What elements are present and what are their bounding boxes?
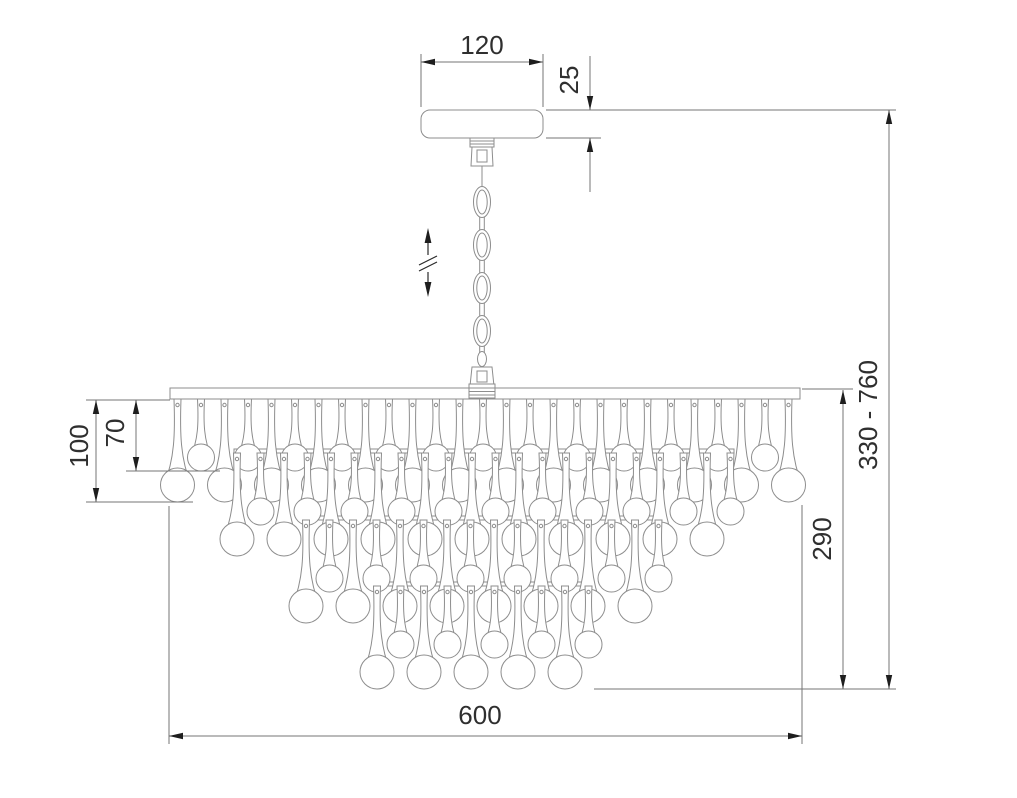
drop-ball xyxy=(387,631,414,658)
drop-ball xyxy=(220,522,254,556)
drop-hook xyxy=(458,403,461,406)
drop-hook xyxy=(610,524,613,527)
drop-hook xyxy=(481,403,484,406)
dim-label-long-drop: 100 xyxy=(64,424,94,467)
drop-hook xyxy=(658,457,661,460)
drop-ball xyxy=(690,522,724,556)
dim-label-canopy-width: 120 xyxy=(460,30,503,60)
chain-link xyxy=(474,230,491,261)
drop-hook xyxy=(740,403,743,406)
drop-hook xyxy=(528,403,531,406)
drop-hook xyxy=(317,403,320,406)
drop-hook xyxy=(563,524,566,527)
drop-hook xyxy=(447,457,450,460)
drop-hook xyxy=(787,403,790,406)
drop-ball xyxy=(360,655,394,689)
drop-ball xyxy=(289,589,323,623)
drop-hook xyxy=(705,457,708,460)
drop-hook xyxy=(353,457,356,460)
drop-ball xyxy=(267,522,301,556)
drop-hook xyxy=(293,403,296,406)
drop-ball xyxy=(316,565,343,592)
drop-hook xyxy=(588,457,591,460)
drop-ball xyxy=(454,655,488,689)
drop-ball xyxy=(501,655,535,689)
drop-hook xyxy=(306,457,309,460)
chain-link xyxy=(474,273,491,304)
drop-hook xyxy=(328,524,331,527)
drop-hook xyxy=(340,403,343,406)
drop-hook xyxy=(445,524,448,527)
drop-ball xyxy=(247,498,274,525)
dim-label-canopy-height: 25 xyxy=(554,66,584,95)
drop-hook xyxy=(586,524,589,527)
drop-hook xyxy=(351,524,354,527)
drop-hook xyxy=(540,590,543,593)
drop-hook xyxy=(682,457,685,460)
drop-hook xyxy=(270,403,273,406)
drop-hook xyxy=(492,524,495,527)
drop-ball xyxy=(188,444,215,471)
drop-hook xyxy=(199,403,202,406)
drop-hook xyxy=(376,457,379,460)
drop-ball xyxy=(752,444,779,471)
drop-ball xyxy=(670,498,697,525)
drop-hook xyxy=(729,457,732,460)
drop-hook xyxy=(398,524,401,527)
drop-hook xyxy=(517,457,520,460)
bottom-cup xyxy=(470,367,494,386)
drop-hook xyxy=(539,524,542,527)
dim-label-short-drop: 70 xyxy=(100,419,130,448)
drop-hook xyxy=(516,590,519,593)
drop-ball xyxy=(575,631,602,658)
drop-ball xyxy=(548,655,582,689)
chain-link xyxy=(474,187,491,218)
drop-hook xyxy=(400,457,403,460)
drop-hook xyxy=(516,524,519,527)
drop-hook xyxy=(552,403,555,406)
drop-hook xyxy=(411,403,414,406)
drop-hook xyxy=(587,590,590,593)
drop-hook xyxy=(646,403,649,406)
drop-hook xyxy=(375,524,378,527)
drop-ball xyxy=(645,565,672,592)
dim-label-body-height: 290 xyxy=(807,517,837,560)
drop-hook xyxy=(423,457,426,460)
drop-hook xyxy=(563,590,566,593)
drop-hook xyxy=(575,403,578,406)
chain-link xyxy=(474,316,491,347)
drop-ball xyxy=(528,631,555,658)
bar-hub xyxy=(469,384,495,398)
drop-hook xyxy=(564,457,567,460)
dim-label-body-width: 600 xyxy=(458,700,501,730)
drop-hook xyxy=(470,457,473,460)
drop-ball xyxy=(407,655,441,689)
drop-ball xyxy=(161,468,195,502)
connector-ribs xyxy=(470,138,494,147)
end-link xyxy=(478,352,487,367)
drop-hook xyxy=(494,457,497,460)
drop-hook xyxy=(669,403,672,406)
drop-hook xyxy=(763,403,766,406)
drop-hook xyxy=(329,457,332,460)
drop-hook xyxy=(422,590,425,593)
drop-hook xyxy=(611,457,614,460)
drop-ball xyxy=(481,631,508,658)
drop-hook xyxy=(235,457,238,460)
drop-hook xyxy=(693,403,696,406)
drop-hook xyxy=(422,524,425,527)
drop-hook xyxy=(657,524,660,527)
drop-hook xyxy=(505,403,508,406)
drop-hook xyxy=(223,403,226,406)
drop-hook xyxy=(399,590,402,593)
drop-ball xyxy=(618,589,652,623)
drop-hook xyxy=(246,403,249,406)
drop-ball xyxy=(598,565,625,592)
dim-label-overall-height: 330 - 760 xyxy=(853,360,883,470)
drop-hook xyxy=(633,524,636,527)
drop-hook xyxy=(446,590,449,593)
drop-hook xyxy=(469,590,472,593)
drop-ball xyxy=(772,468,806,502)
drop-hook xyxy=(716,403,719,406)
drop-hook xyxy=(304,524,307,527)
drop-hook xyxy=(622,403,625,406)
drop-hook xyxy=(282,457,285,460)
drop-ball xyxy=(336,589,370,623)
drop-hook xyxy=(469,524,472,527)
drop-hook xyxy=(259,457,262,460)
drop-hook xyxy=(599,403,602,406)
ceiling-canopy xyxy=(421,110,543,138)
drop-hook xyxy=(434,403,437,406)
chandelier-dimension-drawing: 120 25 330 - 760 290 100 70 600 xyxy=(0,0,1017,798)
drop-hook xyxy=(176,403,179,406)
drop-hook xyxy=(375,590,378,593)
drop-ball xyxy=(717,498,744,525)
drop-ball xyxy=(434,631,461,658)
drop-hook xyxy=(541,457,544,460)
drop-hook xyxy=(387,403,390,406)
drop-hook xyxy=(635,457,638,460)
drop-hook xyxy=(364,403,367,406)
drop-hook xyxy=(493,590,496,593)
